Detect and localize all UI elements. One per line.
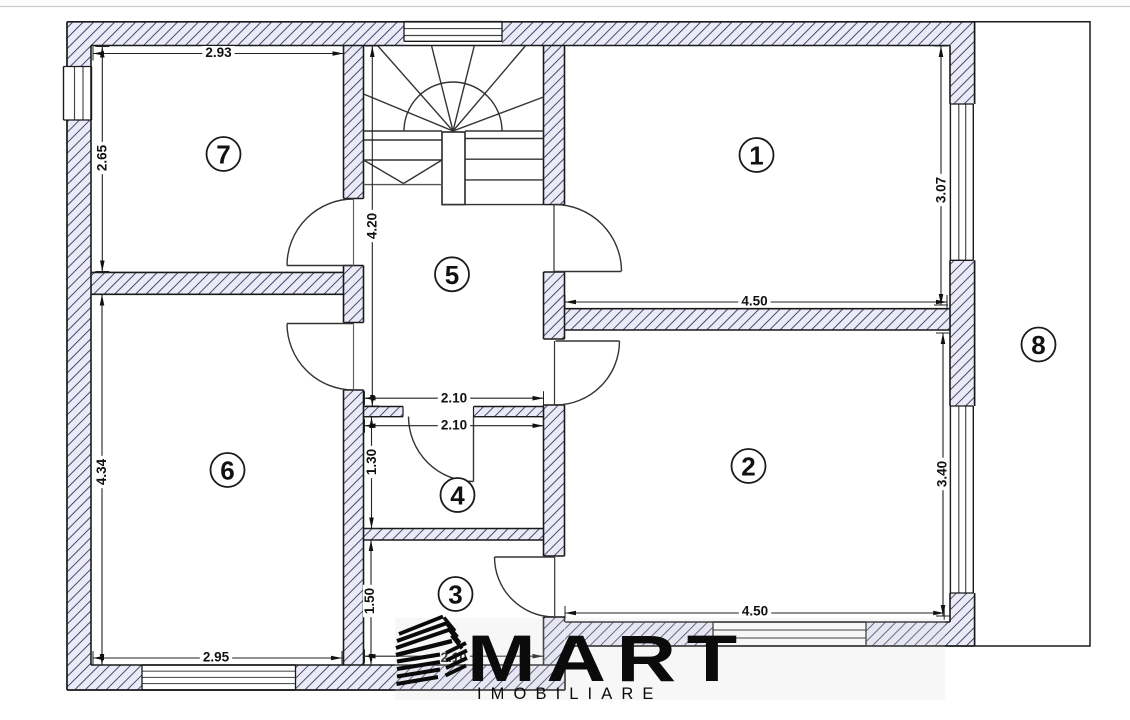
svg-text:1: 1 [749,141,763,171]
svg-text:3.07: 3.07 [934,177,949,203]
svg-text:1.30: 1.30 [364,449,379,475]
svg-text:3: 3 [448,580,462,610]
svg-text:4.50: 4.50 [741,294,767,309]
svg-text:1.50: 1.50 [362,588,377,614]
svg-text:2.10: 2.10 [441,418,467,433]
svg-text:2.65: 2.65 [95,144,110,171]
svg-text:4: 4 [450,481,465,511]
svg-text:4.34: 4.34 [94,458,109,485]
svg-text:IMOBILIARE: IMOBILIARE [477,685,662,703]
svg-text:6: 6 [220,456,234,486]
svg-text:2: 2 [741,452,755,482]
svg-text:8: 8 [1031,330,1045,360]
svg-text:2.10: 2.10 [441,391,467,406]
svg-text:5: 5 [445,260,459,290]
svg-text:7: 7 [216,140,230,170]
svg-text:MART: MART [467,621,748,695]
svg-text:4.20: 4.20 [365,213,380,239]
svg-text:2.93: 2.93 [205,45,232,60]
svg-text:2.95: 2.95 [203,650,230,665]
svg-text:3.40: 3.40 [935,461,950,487]
svg-text:4.50: 4.50 [742,604,768,619]
